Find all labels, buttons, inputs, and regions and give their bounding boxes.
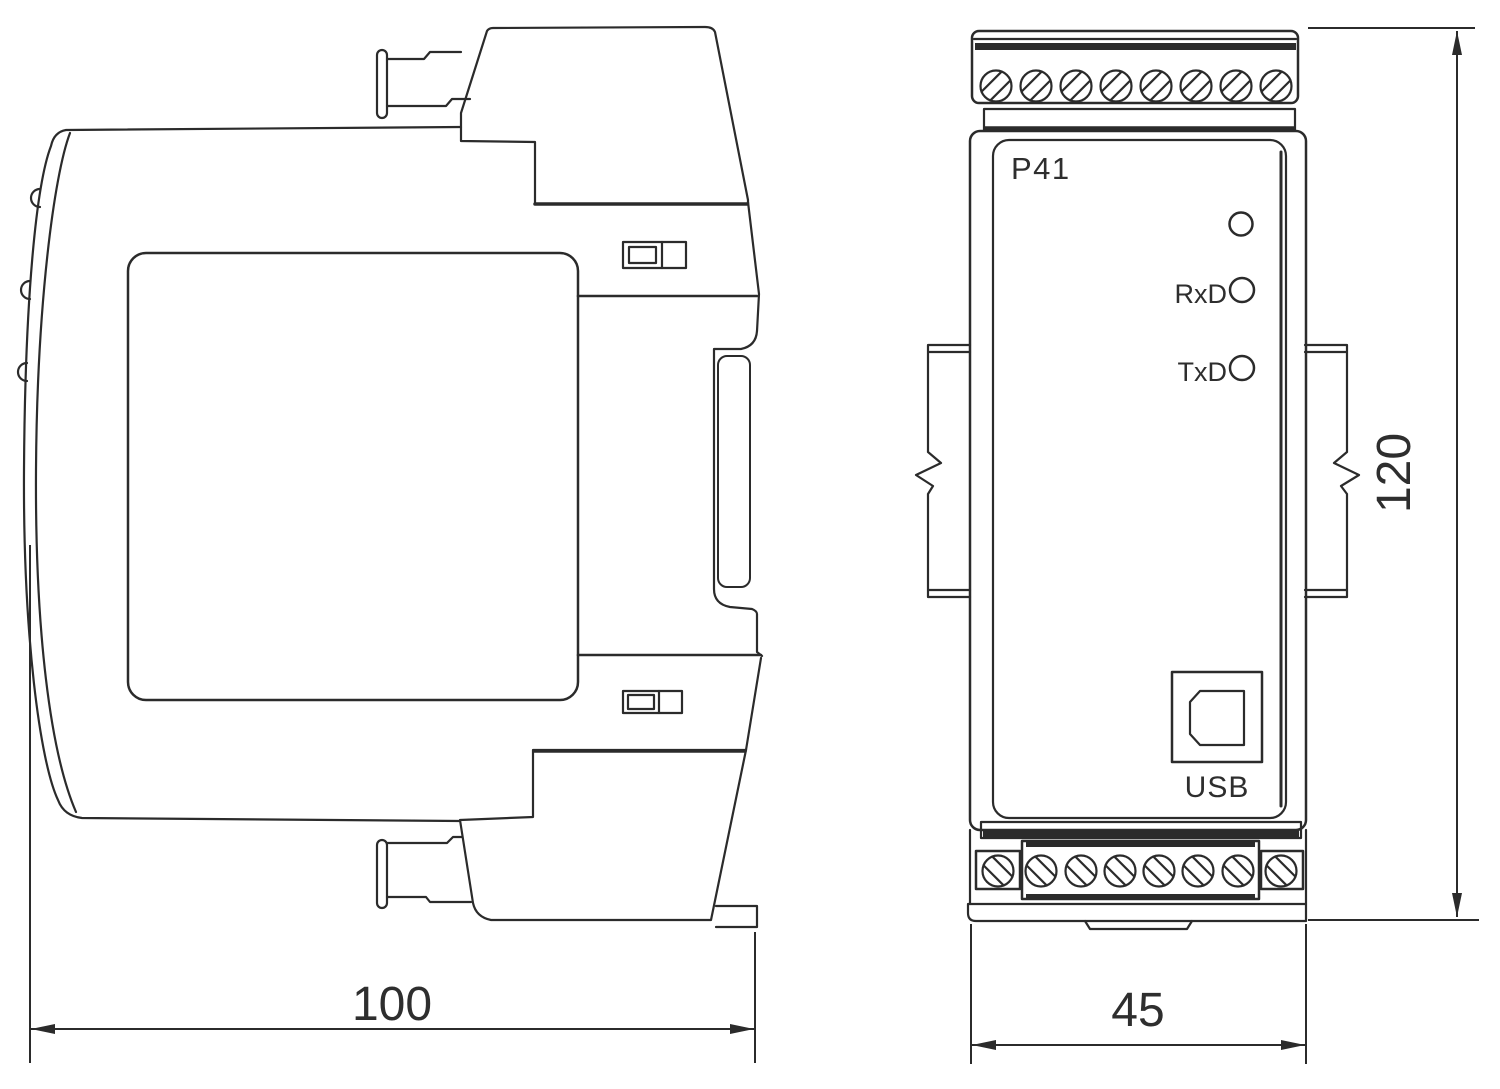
- terminal-screw: [976, 849, 1020, 893]
- front-bottom-terminal-dark-bottom: [1026, 894, 1255, 899]
- terminal-screw: [1094, 64, 1138, 108]
- power-led: [1230, 213, 1253, 236]
- usb-b-port-icon: [1172, 672, 1262, 762]
- bottom-terminal-screws: [976, 849, 1303, 893]
- side-lower-switch: [623, 691, 682, 713]
- usb-label: USB: [1185, 771, 1250, 804]
- side-rear-edge-lower: [746, 658, 761, 750]
- txd-led: [1230, 356, 1254, 380]
- terminal-screw: [1054, 64, 1098, 108]
- terminal-screw: [1259, 849, 1303, 893]
- din-rail-stub-left: [916, 345, 970, 597]
- front-base-plate: [968, 904, 1306, 921]
- rxd-label: RxD: [1175, 279, 1228, 309]
- dim-120-value: 120: [1368, 433, 1421, 513]
- front-top-terminal-dark-band: [975, 43, 1296, 50]
- dimension-texts: 100 45 120: [352, 433, 1421, 1037]
- side-din-channel: [714, 331, 762, 656]
- terminal-screw: [1019, 849, 1063, 893]
- front-bottom-terminal-dark-top: [1026, 842, 1255, 847]
- terminal-screw: [1014, 64, 1058, 108]
- side-rear-edge-upper: [748, 202, 759, 331]
- model-label: P41: [1011, 151, 1071, 186]
- rxd-led: [1230, 278, 1254, 302]
- side-top-latch-bar: [377, 50, 387, 118]
- front-body-outline: [970, 131, 1306, 830]
- dimension-annotations: [30, 28, 1479, 1064]
- front-face-plate: [993, 140, 1286, 818]
- side-display-window: [128, 253, 578, 700]
- side-top-latch-arms: [387, 52, 470, 106]
- terminal-screw: [1176, 849, 1220, 893]
- front-view: [916, 31, 1359, 929]
- front-view-labels: P41 RxD TxD USB: [1011, 151, 1249, 804]
- terminal-screw: [1214, 64, 1258, 108]
- dim-45-value: 45: [1111, 984, 1164, 1037]
- side-din-channel-inner: [718, 356, 750, 587]
- terminal-screw: [1137, 849, 1181, 893]
- terminal-screw: [1216, 849, 1260, 893]
- side-upper-switch: [623, 242, 686, 268]
- terminal-screw: [974, 64, 1018, 108]
- dim-100-value: 100: [352, 978, 432, 1031]
- side-body-inner-curve: [36, 133, 76, 812]
- front-base-tab: [1085, 921, 1192, 929]
- terminal-screw: [1174, 64, 1218, 108]
- side-bottom-terminal-cover: [460, 750, 746, 920]
- terminal-screw: [1254, 64, 1298, 108]
- front-bottom-bar-dark: [983, 831, 1299, 837]
- terminal-screw: [1098, 849, 1142, 893]
- side-top-terminal-cover: [461, 27, 748, 204]
- din-rail-stub-right: [1305, 345, 1359, 597]
- top-terminal-screws: [974, 64, 1298, 108]
- technical-drawing-canvas: P41 RxD TxD USB 100 45 120: [0, 0, 1500, 1089]
- txd-label: TxD: [1178, 357, 1228, 387]
- side-rear-foot: [716, 906, 757, 927]
- terminal-screw: [1059, 849, 1103, 893]
- side-bottom-latch-arms: [387, 837, 471, 902]
- side-view: [18, 27, 762, 927]
- terminal-screw: [1134, 64, 1178, 108]
- side-bottom-latch-bar: [377, 840, 387, 908]
- dimension-drawing: P41 RxD TxD USB 100 45 120: [0, 0, 1500, 1089]
- side-body-silhouette: [24, 127, 461, 821]
